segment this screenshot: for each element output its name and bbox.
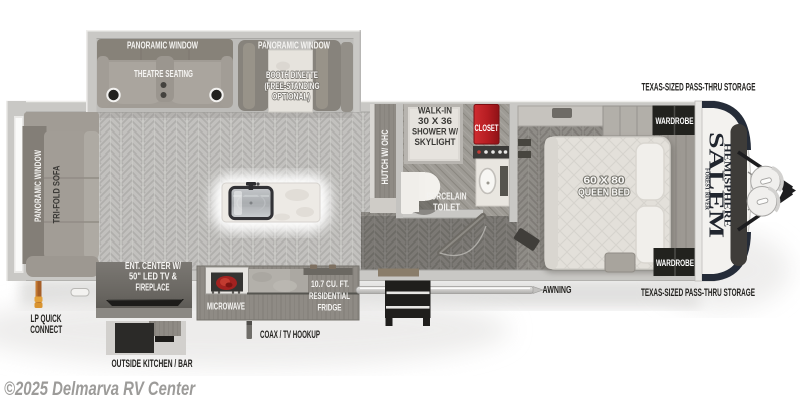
svg-text:(FREE-STANDING: (FREE-STANDING: [265, 81, 320, 92]
svg-text:WARDROBE: WARDROBE: [656, 116, 694, 126]
svg-text:RESIDENTIAL: RESIDENTIAL: [309, 291, 350, 302]
svg-text:WARDROBE: WARDROBE: [656, 258, 694, 268]
svg-text:BOOTH DINETTE: BOOTH DINETTE: [266, 70, 318, 81]
svg-text:ENT. CENTER W/: ENT. CENTER W/: [125, 261, 181, 272]
svg-text:FRIDGE: FRIDGE: [318, 303, 342, 314]
svg-text:FOREST RIVER: FOREST RIVER: [704, 168, 711, 210]
svg-text:TEXAS-SIZED PASS-THRU STORAGE: TEXAS-SIZED PASS-THRU STORAGE: [641, 287, 755, 299]
svg-text:SKYLIGHT: SKYLIGHT: [415, 136, 456, 147]
svg-text:50" LED TV &: 50" LED TV &: [129, 272, 177, 283]
svg-text:TRI-FOLD SOFA: TRI-FOLD SOFA: [51, 165, 62, 223]
svg-text:QUEEN BED: QUEEN BED: [578, 188, 630, 199]
svg-text:HUTCH W/ OHC: HUTCH W/ OHC: [379, 129, 390, 184]
svg-text:FIREPLACE: FIREPLACE: [136, 282, 170, 293]
svg-text:60 X 80: 60 X 80: [584, 176, 625, 187]
svg-text:WALK-IN: WALK-IN: [418, 105, 452, 116]
svg-text:TOILET: TOILET: [433, 203, 460, 214]
svg-text:PANORAMIC WINDOW: PANORAMIC WINDOW: [32, 150, 43, 222]
svg-text:OPTIONAL): OPTIONAL): [272, 92, 310, 103]
svg-text:TEXAS-SIZED PASS-THRU STORAGE: TEXAS-SIZED PASS-THRU STORAGE: [642, 82, 756, 94]
svg-text:AWNING: AWNING: [543, 285, 572, 296]
svg-text:PORCELAIN: PORCELAIN: [427, 192, 467, 203]
svg-text:10.7 CU. FT.: 10.7 CU. FT.: [311, 279, 349, 290]
svg-text:PANORAMIC WINDOW: PANORAMIC WINDOW: [127, 41, 198, 52]
svg-text:PANORAMIC WINDOW: PANORAMIC WINDOW: [258, 41, 330, 52]
svg-text:COAX / TV HOOKUP: COAX / TV HOOKUP: [260, 329, 320, 341]
svg-text:CONNECT: CONNECT: [30, 324, 62, 336]
svg-text:MICROWAVE: MICROWAVE: [207, 302, 245, 313]
svg-text:SHOWER W/: SHOWER W/: [412, 126, 458, 137]
svg-text:THEATRE SEATING: THEATRE SEATING: [134, 69, 193, 80]
svg-text:HEMISPHERE: HEMISPHERE: [723, 143, 733, 227]
svg-text:©2025 Delmarva RV Center: ©2025 Delmarva RV Center: [4, 379, 196, 400]
svg-text:OUTSIDE KITCHEN / BAR: OUTSIDE KITCHEN / BAR: [112, 358, 193, 370]
svg-text:30 X 36: 30 X 36: [418, 115, 452, 126]
svg-text:CLOSET: CLOSET: [475, 123, 499, 133]
